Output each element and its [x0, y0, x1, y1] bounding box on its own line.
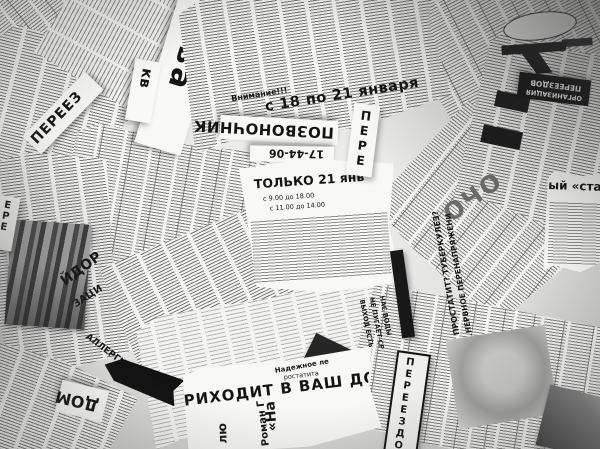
- headline-pere: ПЕРЕ: [353, 107, 373, 168]
- handgun-silhouette-icon: [499, 27, 597, 80]
- schedule-scrap: ТОЛЬКО 21 янв с 9.00 до 18.00 с 11.00 до…: [238, 153, 402, 298]
- headline-kv: кв: [137, 67, 155, 89]
- fine-print: [251, 211, 392, 282]
- headline-dom: ДОМ: [54, 388, 100, 414]
- steel-headline-scrap: ый «стал: [543, 171, 600, 273]
- headline-steel: ый «стал: [548, 179, 600, 193]
- schedule-line: с 11.00 до 14.00: [269, 202, 325, 212]
- headline-ere: ЕРЕ: [0, 199, 13, 233]
- fine-print: [548, 201, 600, 265]
- headline-quote-na: «На: [263, 401, 280, 432]
- spine-headline-scrap: ПОЗВОНОЧНИК: [219, 115, 338, 145]
- teapot-photo: [446, 325, 559, 430]
- headline-lyu: лю: [216, 423, 229, 444]
- headline-pereezdov: ПЕРЕЕЗДОВ: [391, 356, 416, 449]
- phone-number: 17-44-06: [269, 148, 324, 160]
- headline-date-range: с 18 по 21 января: [264, 76, 420, 115]
- ad-box: [480, 124, 523, 150]
- newspaper-collage-photo: осква кв Внимание!!! с 18 по 21 января П…: [0, 0, 600, 449]
- handgun-photo: [499, 27, 597, 80]
